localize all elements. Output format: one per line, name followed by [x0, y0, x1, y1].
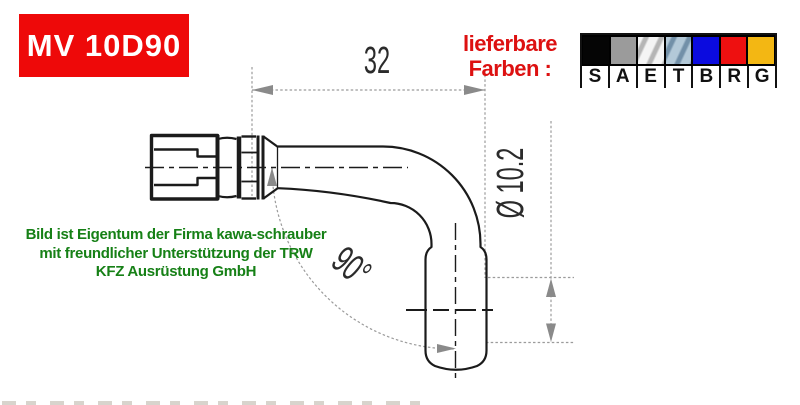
arrow-dia-up: [546, 279, 556, 298]
color-letter-r: R: [719, 66, 747, 88]
color-swatch-e: [638, 37, 664, 64]
color-letter-a: A: [608, 66, 636, 88]
available-colors-label: lieferbare Farben :: [438, 31, 582, 83]
available-colors-label-line1: lieferbare: [438, 31, 582, 56]
color-swatch-a: [611, 37, 637, 64]
color-swatch-row: [582, 35, 775, 66]
dimension-diameter-label: Ø 10.2: [491, 140, 531, 227]
color-swatch-t: [666, 37, 692, 64]
color-swatch-b: [693, 37, 719, 64]
watermark-line2: mit freundlicher Unterstützung der TRW: [0, 245, 352, 264]
color-swatch-r: [721, 37, 747, 64]
color-letter-s: S: [582, 66, 608, 88]
color-swatch-g: [748, 37, 774, 64]
dimension-length-label: 32: [346, 39, 408, 83]
arrow-arc-start: [267, 168, 277, 187]
available-colors-label-line2: Farben :: [438, 56, 582, 81]
part-number-badge: MV 10D90: [19, 14, 189, 77]
color-swatch-s: [583, 37, 609, 64]
watermark-line1: Bild ist Eigentum der Firma kawa-schraub…: [0, 226, 352, 245]
collar-top: [218, 138, 237, 139]
page-root: { "part_badge": { "text": "MV 10D90", "b…: [0, 0, 800, 405]
color-letter-b: B: [691, 66, 719, 88]
image-ownership-watermark: Bild ist Eigentum der Firma kawa-schraub…: [0, 226, 352, 282]
watermark-line3: KFZ Ausrüstung GmbH: [0, 263, 352, 282]
arrow-arc-end: [437, 344, 456, 353]
arrow-32-left: [252, 85, 273, 95]
cone-bottom: [264, 188, 279, 199]
color-letter-e: E: [636, 66, 664, 88]
collar-bottom: [218, 196, 237, 197]
color-letter-g: G: [747, 66, 775, 88]
color-table: SAETBRG: [580, 33, 777, 88]
color-letter-t: T: [664, 66, 692, 88]
bottom-cutoff-marks: [2, 401, 420, 405]
arrow-dia-down: [546, 324, 556, 343]
arrow-32-right: [464, 85, 485, 95]
color-letter-row: SAETBRG: [582, 66, 775, 88]
cone-top: [264, 137, 279, 148]
